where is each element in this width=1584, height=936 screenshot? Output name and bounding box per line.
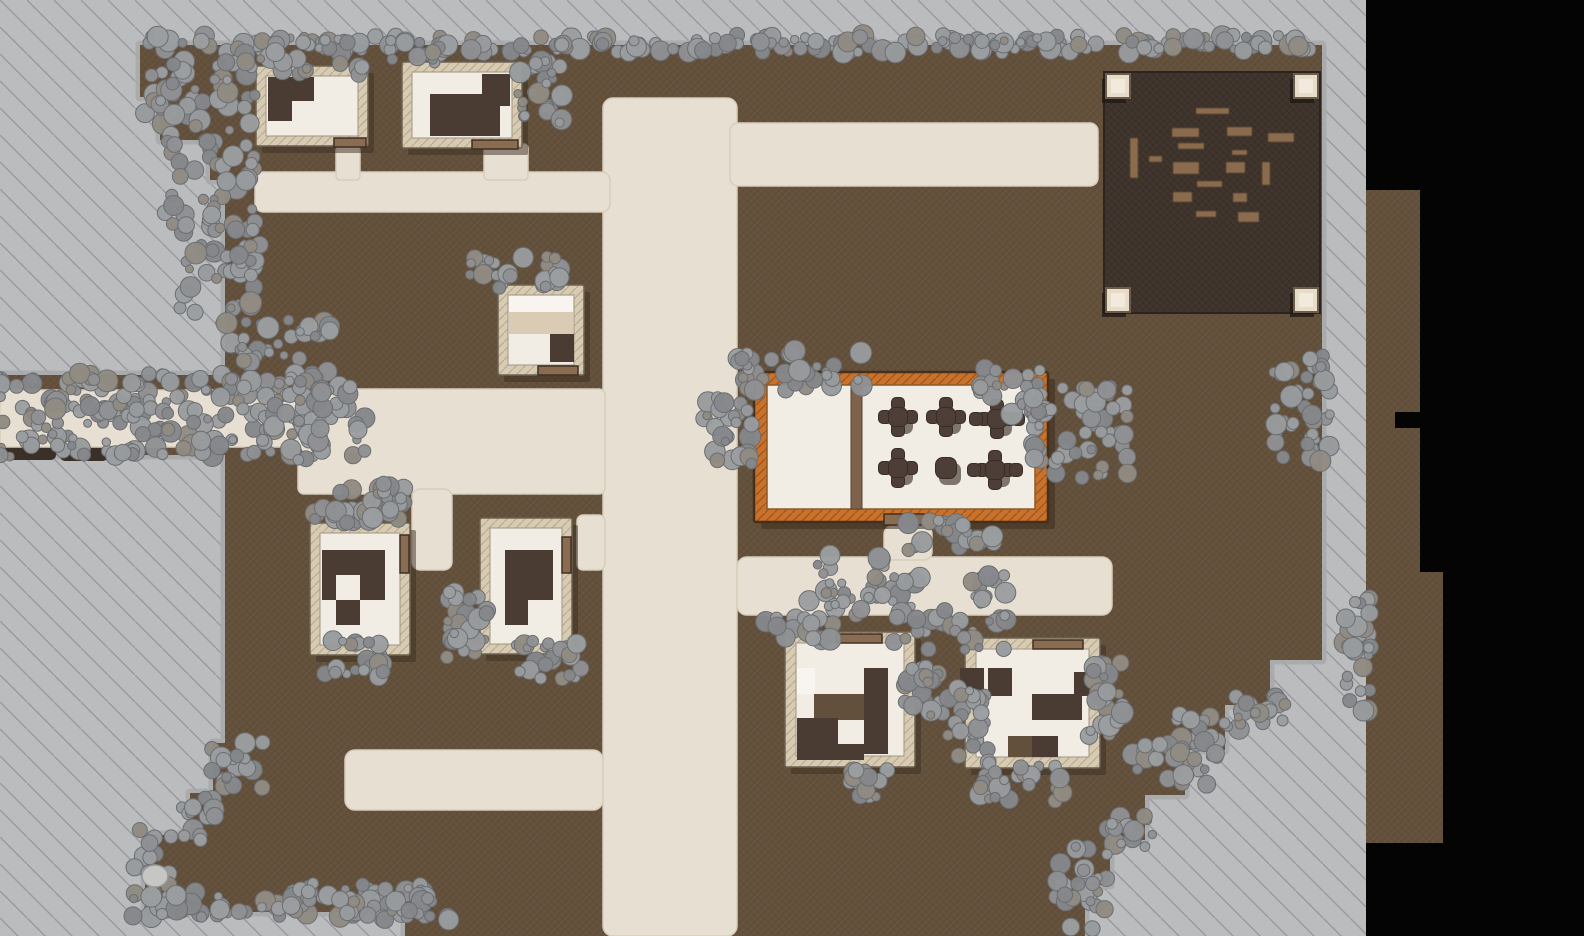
bush xyxy=(719,34,737,52)
bush xyxy=(1051,451,1064,464)
bush xyxy=(1343,638,1364,659)
bush xyxy=(31,410,46,425)
plaza-plank[interactable] xyxy=(1178,143,1204,149)
house-a-furnishing[interactable] xyxy=(268,101,292,121)
bush xyxy=(1075,471,1088,484)
bush xyxy=(1117,839,1126,848)
bush xyxy=(1355,686,1366,697)
bush xyxy=(513,247,533,267)
bush xyxy=(312,383,331,402)
bush xyxy=(933,515,944,526)
bush xyxy=(302,64,311,73)
bush xyxy=(1133,764,1143,774)
bush xyxy=(965,687,973,695)
bush xyxy=(1302,388,1314,400)
bush xyxy=(164,196,184,216)
bush xyxy=(0,415,10,429)
bush xyxy=(241,317,251,327)
bush xyxy=(1013,760,1028,775)
bush xyxy=(1301,371,1313,383)
house-c[interactable] xyxy=(498,285,590,382)
bush xyxy=(225,373,237,385)
bush xyxy=(854,376,863,385)
bush xyxy=(102,438,110,446)
bush xyxy=(132,823,147,838)
bush xyxy=(547,69,556,78)
bush xyxy=(978,566,998,586)
bush xyxy=(1198,775,1216,793)
bush xyxy=(567,634,586,653)
bush xyxy=(510,62,531,83)
bush xyxy=(1079,427,1091,439)
plaza-post[interactable] xyxy=(1290,74,1318,103)
plaza-post-cap xyxy=(1299,293,1313,307)
house-c-furnishing[interactable] xyxy=(509,312,573,334)
bush xyxy=(1098,381,1116,399)
bush xyxy=(1258,41,1272,55)
bush xyxy=(822,370,832,380)
bush xyxy=(651,41,671,61)
east-ground-strip-1 xyxy=(1366,190,1420,572)
bush xyxy=(949,32,961,44)
house-d-furnishing[interactable] xyxy=(336,600,360,625)
bush xyxy=(886,634,903,651)
bush xyxy=(162,408,174,420)
bush xyxy=(237,53,255,71)
bush xyxy=(1086,876,1100,890)
bush xyxy=(178,217,195,234)
bush xyxy=(1093,470,1103,480)
bush xyxy=(217,82,238,103)
bush xyxy=(1071,877,1085,891)
bush xyxy=(187,415,201,429)
bush xyxy=(195,94,211,110)
house-e-furnishing[interactable] xyxy=(505,600,528,625)
bush xyxy=(210,75,220,85)
bush xyxy=(292,352,306,366)
bush xyxy=(240,292,262,314)
plaza-post[interactable] xyxy=(1102,288,1130,317)
plaza-plank[interactable] xyxy=(1233,193,1247,202)
bush xyxy=(274,339,283,348)
bush xyxy=(333,484,349,500)
bush xyxy=(157,449,168,460)
house-b[interactable] xyxy=(402,62,528,155)
bush xyxy=(1234,713,1242,721)
plaza-post[interactable] xyxy=(1290,288,1318,317)
bush xyxy=(229,436,237,444)
bush xyxy=(1078,864,1090,876)
bush xyxy=(409,48,427,66)
plaza-plank[interactable] xyxy=(1238,212,1259,222)
bush xyxy=(1270,403,1280,413)
house-f-furnishing[interactable] xyxy=(864,668,888,754)
bush xyxy=(1062,918,1080,936)
bush xyxy=(1057,383,1068,394)
bush xyxy=(1350,597,1361,608)
bush xyxy=(212,273,222,283)
bush xyxy=(1111,702,1133,724)
house-a-furnishing[interactable] xyxy=(268,77,314,101)
bush xyxy=(143,850,157,864)
bush xyxy=(985,617,993,625)
house-e-door[interactable] xyxy=(562,537,571,573)
plaza-plank[interactable] xyxy=(1262,162,1270,185)
table-part xyxy=(970,413,983,426)
bush xyxy=(853,30,868,45)
bush xyxy=(1118,464,1136,482)
bush xyxy=(923,677,933,687)
house-d-furnishing[interactable] xyxy=(336,575,360,600)
southwest-road xyxy=(345,750,603,810)
bush xyxy=(180,277,201,298)
bush xyxy=(218,54,235,71)
plaza-plank[interactable] xyxy=(1130,138,1138,178)
bush xyxy=(921,642,936,657)
bush xyxy=(1354,658,1373,677)
tavern-divider-wall xyxy=(851,385,862,509)
bush xyxy=(852,601,870,619)
plaza-plank[interactable] xyxy=(1196,211,1216,217)
bush xyxy=(1287,417,1299,429)
rock[interactable] xyxy=(142,865,168,887)
bush xyxy=(1277,715,1288,726)
bush xyxy=(254,780,269,795)
bush xyxy=(210,900,229,919)
bush xyxy=(167,58,181,72)
bush xyxy=(1241,32,1251,42)
north-road xyxy=(730,123,1098,186)
bush xyxy=(142,367,156,381)
northwest-lane xyxy=(255,172,610,212)
bush xyxy=(1024,388,1044,408)
bush xyxy=(768,617,786,635)
bush xyxy=(401,903,417,919)
bush xyxy=(1096,901,1113,918)
bush xyxy=(549,253,560,264)
bush xyxy=(1114,425,1133,444)
bush xyxy=(265,348,274,357)
house-f-furnishing[interactable] xyxy=(814,694,864,720)
bush xyxy=(813,560,822,569)
bush xyxy=(238,342,247,351)
house-a-door[interactable] xyxy=(334,138,366,147)
bush xyxy=(1057,887,1072,902)
bush xyxy=(1102,849,1112,859)
bush xyxy=(236,353,251,368)
map-stage xyxy=(0,0,1584,936)
bush xyxy=(1118,448,1135,465)
bush xyxy=(256,735,270,749)
house-f-furnishing[interactable] xyxy=(797,718,838,760)
bush xyxy=(1303,351,1318,366)
bush xyxy=(995,582,1016,603)
bush xyxy=(1310,451,1331,472)
bush xyxy=(731,417,741,427)
plaza-plank[interactable] xyxy=(1149,156,1162,162)
bush xyxy=(1058,431,1076,449)
bush xyxy=(214,892,222,900)
bush xyxy=(237,403,249,415)
bush xyxy=(831,600,839,608)
plaza-plank[interactable] xyxy=(1173,162,1199,174)
bush xyxy=(199,133,216,150)
bush xyxy=(714,393,734,413)
bush xyxy=(752,33,770,51)
bush xyxy=(1173,765,1193,785)
plaza-post-cap xyxy=(1299,79,1313,93)
bush xyxy=(22,374,42,394)
plaza-plank[interactable] xyxy=(1173,192,1192,202)
bush xyxy=(463,593,476,606)
bush xyxy=(1148,830,1156,838)
bush xyxy=(943,730,953,740)
bush xyxy=(540,281,551,292)
bush xyxy=(784,340,805,361)
bush xyxy=(479,606,494,621)
bush xyxy=(441,651,454,664)
plaza-plank[interactable] xyxy=(1227,127,1252,136)
bush xyxy=(1095,426,1107,438)
bush xyxy=(67,441,76,450)
bush xyxy=(1289,36,1309,56)
bush xyxy=(78,448,91,461)
house-c-furnishing[interactable] xyxy=(550,334,574,362)
bush xyxy=(280,351,288,359)
bush xyxy=(990,792,1000,802)
bush xyxy=(349,421,367,439)
bush xyxy=(937,603,953,619)
bush xyxy=(382,501,399,518)
house-f-furnishing[interactable] xyxy=(797,668,815,694)
house-g-furnishing[interactable] xyxy=(1032,736,1058,757)
bush xyxy=(1336,609,1355,628)
plaza-post[interactable] xyxy=(1102,74,1130,103)
bush xyxy=(890,573,899,582)
bush xyxy=(443,586,455,598)
bush xyxy=(819,569,828,578)
plaza-plank[interactable] xyxy=(1196,108,1229,114)
bush xyxy=(529,57,542,70)
bush xyxy=(1301,437,1315,451)
bush xyxy=(992,381,1001,390)
bush xyxy=(538,657,553,672)
bush xyxy=(806,631,821,646)
house-f-door[interactable] xyxy=(836,634,882,643)
bush xyxy=(990,40,1000,50)
bush xyxy=(1266,414,1287,435)
table-part xyxy=(986,461,1005,480)
bush xyxy=(66,385,76,395)
plaza-plank[interactable] xyxy=(1197,181,1222,187)
bush xyxy=(162,423,175,436)
house-g-door[interactable] xyxy=(1033,640,1083,649)
bush xyxy=(957,631,970,644)
bush xyxy=(174,302,186,314)
bush xyxy=(461,40,481,60)
bush xyxy=(927,711,935,719)
bush xyxy=(1023,779,1036,792)
bush xyxy=(310,331,320,341)
plaza-plank[interactable] xyxy=(1226,162,1245,173)
bush xyxy=(709,33,720,44)
house-e-stub xyxy=(577,515,605,570)
bush xyxy=(974,590,991,607)
table-part xyxy=(936,458,957,479)
bush xyxy=(955,518,970,533)
bush xyxy=(147,26,168,47)
bush xyxy=(84,419,92,427)
bush xyxy=(355,60,370,75)
bush xyxy=(396,33,414,51)
bush xyxy=(80,396,99,415)
house-e-furnishing[interactable] xyxy=(505,550,553,600)
bush xyxy=(1003,369,1023,389)
grove-house-b-right[interactable] xyxy=(510,51,573,130)
bush xyxy=(223,76,232,85)
bush xyxy=(1235,42,1253,60)
house-b-door[interactable] xyxy=(472,140,518,149)
bush xyxy=(963,34,973,44)
house-c-furnishing[interactable] xyxy=(509,296,573,312)
bush xyxy=(266,43,285,62)
bush xyxy=(808,33,824,49)
bush xyxy=(217,172,236,191)
bush xyxy=(966,739,980,753)
plaza-post-cap xyxy=(1111,79,1125,93)
bush xyxy=(1098,683,1116,701)
bush xyxy=(284,315,294,325)
house-b-furnishing[interactable] xyxy=(482,74,510,106)
bush xyxy=(518,97,528,107)
plaza-plank[interactable] xyxy=(1232,150,1247,155)
bush xyxy=(156,96,166,106)
bush xyxy=(543,638,555,650)
bush xyxy=(821,588,831,598)
bush xyxy=(514,90,522,98)
bush xyxy=(439,910,459,930)
bush xyxy=(45,398,66,419)
house-f-furnishing[interactable] xyxy=(838,744,864,760)
bush xyxy=(51,438,65,452)
bush xyxy=(904,696,923,715)
bush xyxy=(1250,708,1260,718)
bush xyxy=(362,507,383,528)
bush xyxy=(885,42,906,63)
bush xyxy=(343,380,357,394)
bush xyxy=(564,670,576,682)
bush xyxy=(1033,34,1042,43)
bush xyxy=(185,242,207,264)
bush xyxy=(898,513,919,534)
table-part xyxy=(968,464,981,477)
bush xyxy=(1204,41,1215,52)
bush xyxy=(1364,643,1374,653)
tavern[interactable] xyxy=(754,372,1055,529)
house-g-furnishing[interactable] xyxy=(1008,736,1032,757)
bush xyxy=(88,374,100,386)
bush xyxy=(996,641,1011,656)
bush xyxy=(1085,921,1101,936)
table-part xyxy=(889,459,908,478)
bush xyxy=(668,44,679,55)
bush xyxy=(196,912,206,922)
bush xyxy=(216,313,237,334)
bush xyxy=(973,380,988,395)
house-g-furnishing[interactable] xyxy=(1032,694,1082,720)
bush xyxy=(1154,44,1164,54)
bush xyxy=(1079,381,1094,396)
bush xyxy=(311,420,329,438)
bush xyxy=(285,376,294,385)
bush xyxy=(527,635,539,647)
bush xyxy=(135,427,150,442)
bush xyxy=(952,723,969,740)
bush xyxy=(695,42,712,59)
bush xyxy=(1343,694,1357,708)
plaza-plank[interactable] xyxy=(1172,128,1199,137)
bush xyxy=(515,666,526,677)
bush xyxy=(164,830,177,843)
bush xyxy=(1071,842,1080,851)
bush xyxy=(1149,751,1164,766)
bush xyxy=(227,304,235,312)
bush xyxy=(1273,31,1283,41)
bush xyxy=(820,545,840,565)
house-c-door[interactable] xyxy=(538,366,578,375)
bush xyxy=(1187,752,1202,767)
plaza-plank[interactable] xyxy=(1268,133,1294,142)
bush xyxy=(1025,449,1043,467)
bush xyxy=(10,379,24,393)
bush xyxy=(218,407,234,423)
bush xyxy=(466,259,475,268)
table-part xyxy=(1010,464,1023,477)
bush xyxy=(114,444,131,461)
bush xyxy=(387,54,397,64)
bush xyxy=(484,256,493,265)
bush xyxy=(141,886,162,907)
bush xyxy=(803,615,820,632)
bush xyxy=(38,435,47,444)
bush xyxy=(230,749,243,762)
bush xyxy=(1216,32,1233,49)
house-g-furnishing[interactable] xyxy=(988,668,1012,696)
house-d-door[interactable] xyxy=(400,535,409,573)
bush xyxy=(164,104,185,125)
bush xyxy=(215,223,225,233)
bush xyxy=(744,380,764,400)
bush xyxy=(513,38,529,54)
bush xyxy=(1140,842,1150,852)
bush xyxy=(166,885,186,905)
bush xyxy=(555,38,569,52)
bush xyxy=(998,570,1009,581)
bush xyxy=(186,265,194,273)
bush xyxy=(867,569,883,585)
bush xyxy=(1275,362,1294,381)
bush xyxy=(176,441,191,456)
bush xyxy=(1086,664,1101,679)
bush xyxy=(744,417,759,432)
bush xyxy=(1207,745,1225,763)
bush xyxy=(321,322,339,340)
bush xyxy=(358,665,369,676)
bush xyxy=(166,218,179,231)
bush xyxy=(340,35,355,50)
bush xyxy=(864,592,874,602)
bush xyxy=(973,780,987,794)
